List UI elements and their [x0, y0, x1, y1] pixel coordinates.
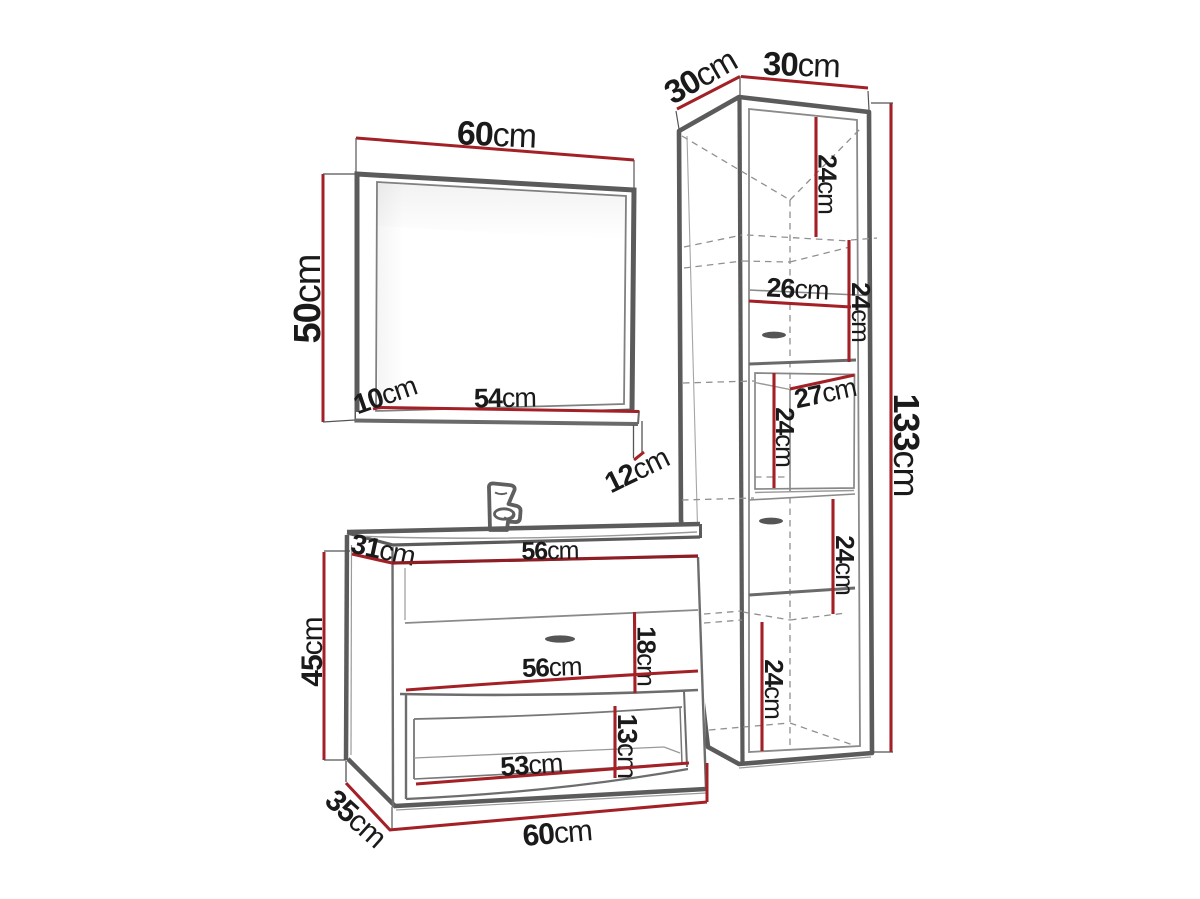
svg-text:53cm: 53cm — [499, 748, 563, 782]
svg-text:24cm: 24cm — [770, 407, 800, 467]
svg-text:56cm: 56cm — [521, 537, 579, 566]
svg-text:24cm: 24cm — [759, 659, 789, 719]
svg-text:50cm: 50cm — [287, 255, 329, 344]
svg-text:133cm: 133cm — [886, 393, 927, 496]
svg-text:60cm: 60cm — [521, 814, 593, 853]
svg-text:24cm: 24cm — [830, 535, 860, 595]
svg-text:45cm: 45cm — [296, 617, 329, 686]
svg-text:24cm: 24cm — [846, 282, 876, 342]
svg-text:26cm: 26cm — [766, 272, 830, 305]
svg-text:60cm: 60cm — [456, 114, 537, 155]
svg-text:24cm: 24cm — [813, 154, 843, 214]
svg-text:54cm: 54cm — [474, 382, 537, 413]
svg-text:30cm: 30cm — [762, 45, 840, 85]
svg-text:18cm: 18cm — [632, 626, 662, 686]
svg-text:56cm: 56cm — [521, 651, 582, 683]
